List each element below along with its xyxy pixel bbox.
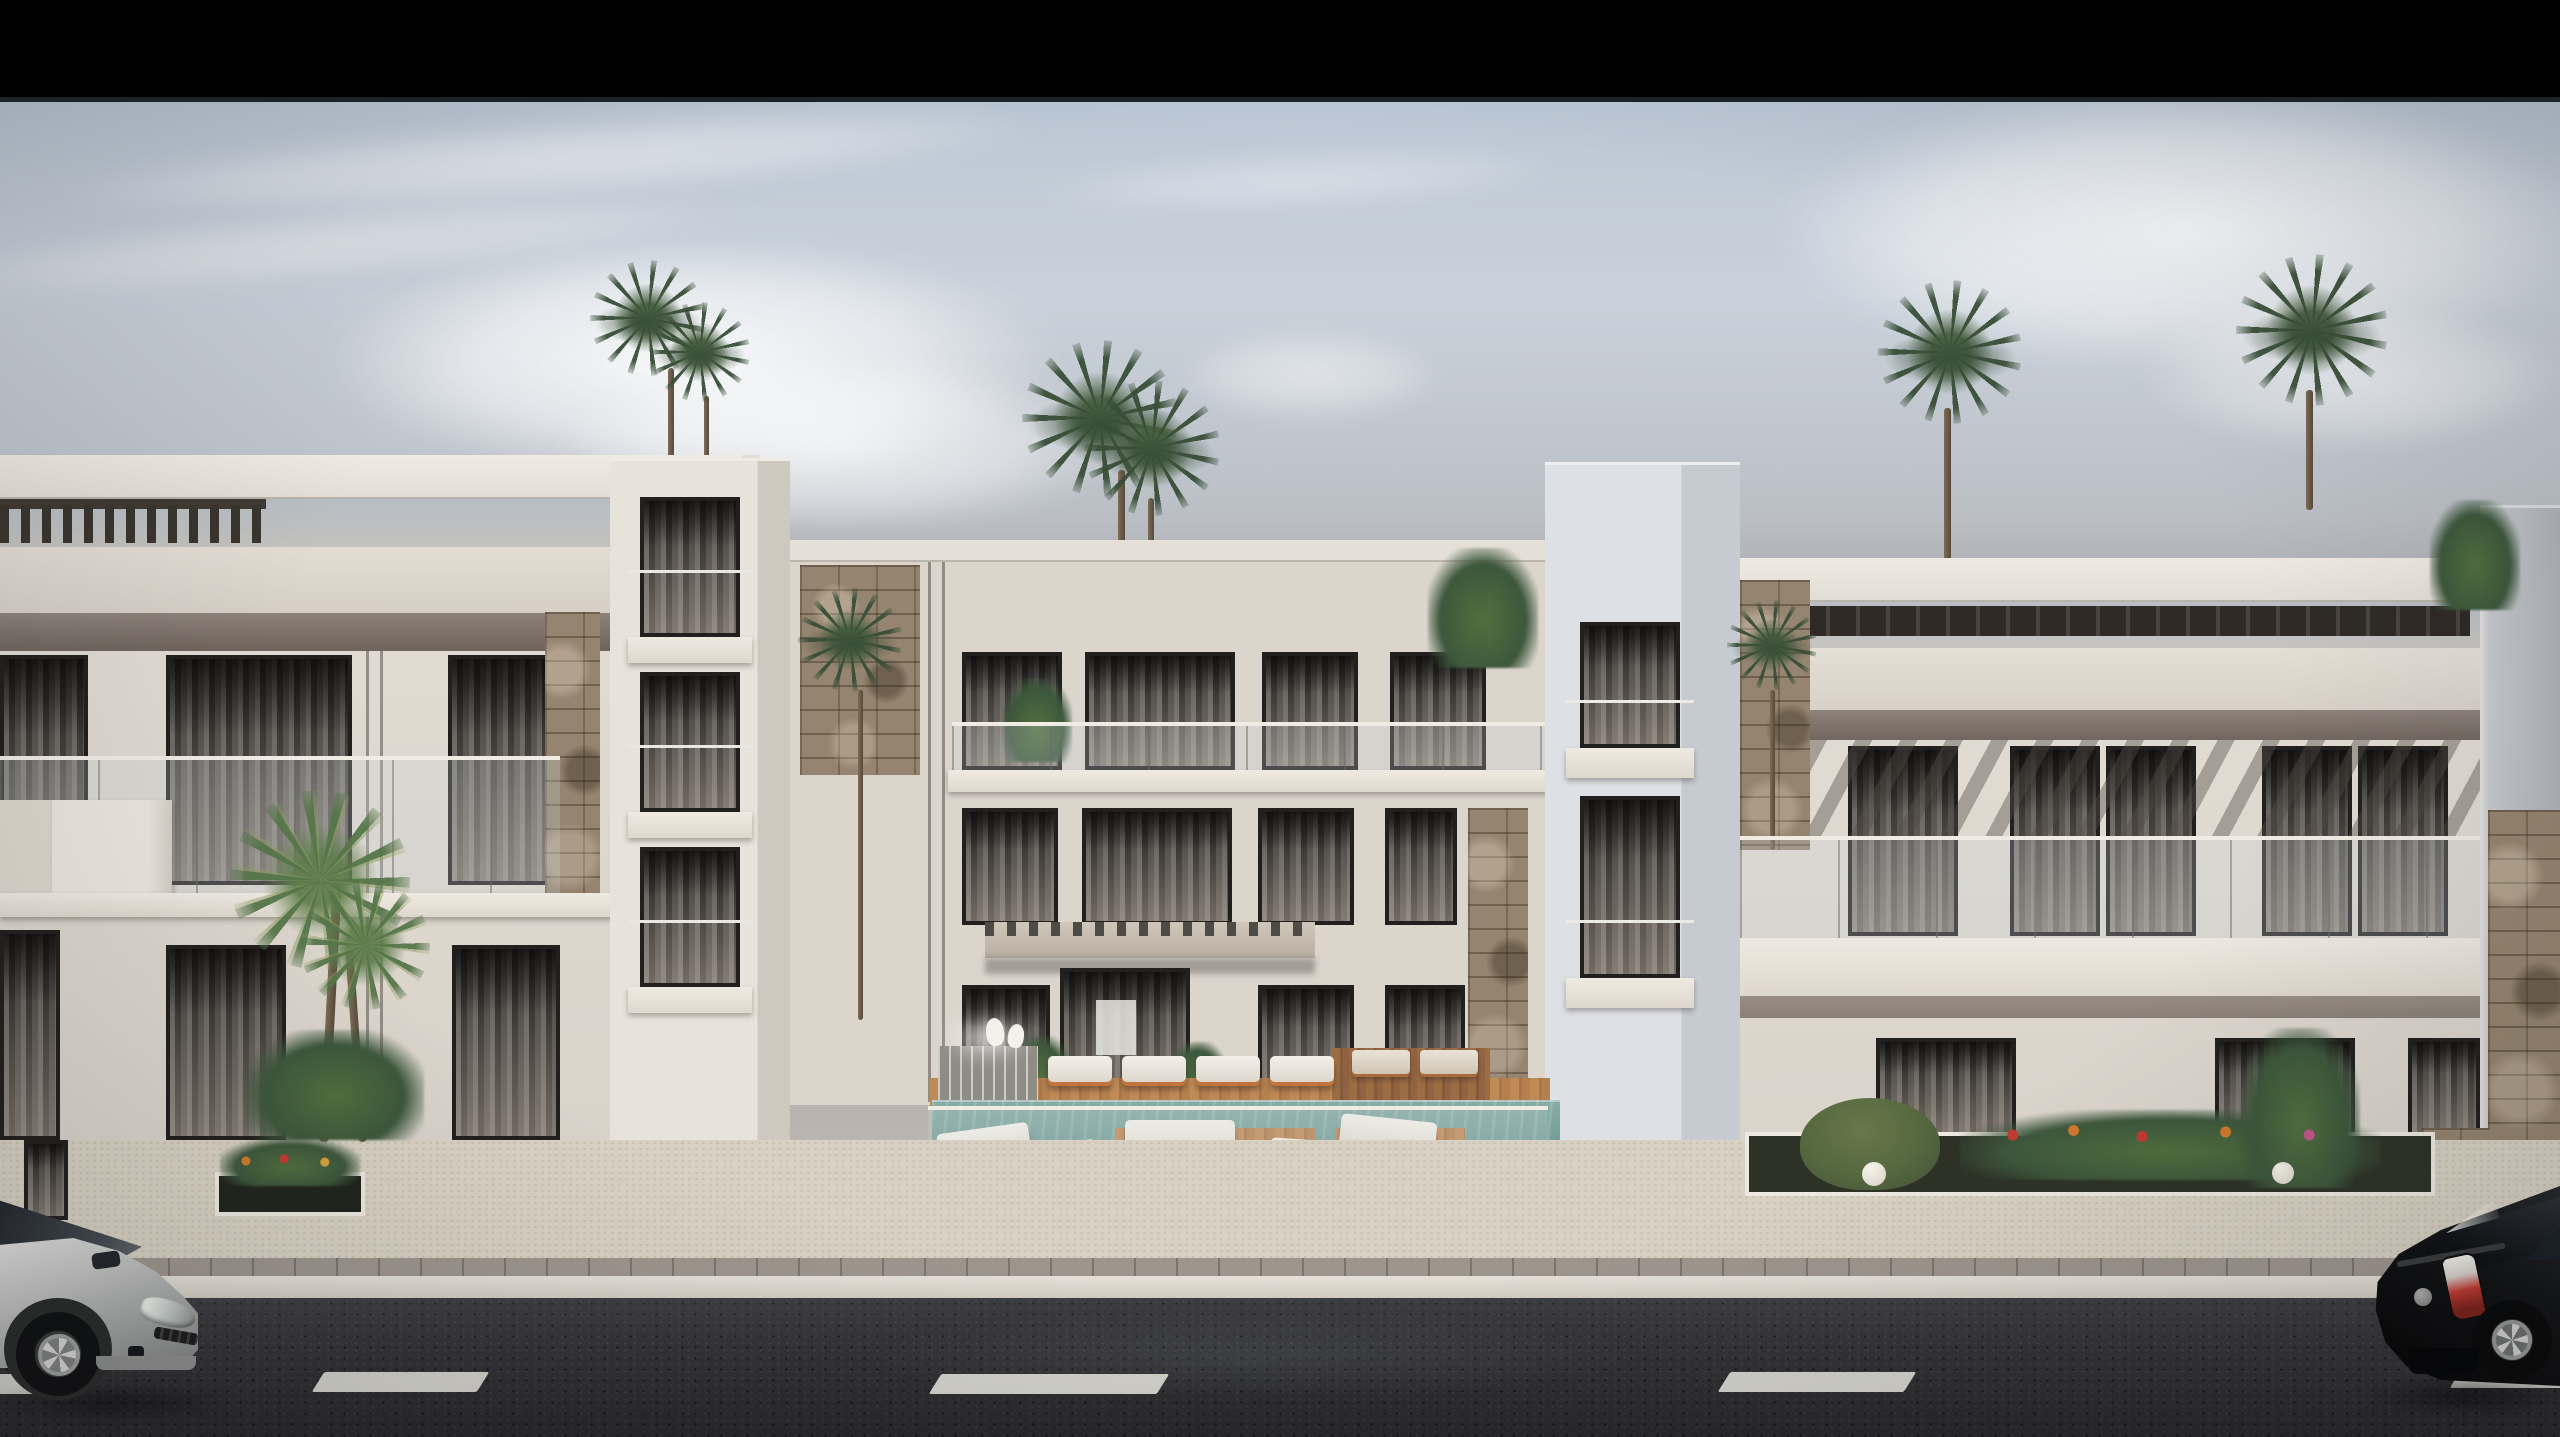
juliet-railing	[628, 920, 752, 923]
sun-lounger	[1048, 1056, 1112, 1082]
silver-car-wheel-hub	[38, 1334, 80, 1376]
tower-window	[640, 497, 740, 637]
bed-flower-dots	[1990, 1120, 2370, 1150]
window	[1082, 808, 1232, 925]
small-tree	[2240, 1028, 2360, 1188]
palm-frond-cluster	[2430, 500, 2520, 610]
courtyard-palm-trunk	[858, 690, 863, 1020]
sphere-lamp	[1862, 1162, 1886, 1186]
cumulus-cloud	[1180, 330, 1440, 420]
black-car-rocker-shadow	[2408, 1348, 2478, 1374]
window	[1385, 808, 1457, 925]
juliet-railing	[628, 745, 752, 748]
window	[962, 808, 1058, 925]
window	[452, 945, 560, 1140]
balcony-slab-band	[1740, 938, 2480, 996]
tower-window	[640, 672, 740, 812]
terrace-palm-trunk	[1770, 690, 1775, 850]
juliet-railing	[1566, 700, 1694, 703]
window	[1258, 808, 1354, 925]
balcony-soffit-shadow	[1740, 996, 2480, 1018]
tower-balcony-slab	[628, 987, 752, 1013]
right-wing-roof-beam	[1740, 558, 2480, 602]
right-wing-fascia	[1740, 648, 2480, 710]
curb-face	[0, 1276, 2560, 1298]
balcony-parapet	[52, 800, 172, 896]
tower-balcony-slab	[628, 637, 752, 663]
balcony-glass-railing	[1740, 836, 2480, 940]
courtyard-palm-crown	[798, 588, 902, 692]
window	[2408, 1038, 2480, 1138]
sun-lounger	[1420, 1050, 1478, 1074]
sidewalk-palm-crown	[300, 880, 430, 1010]
sun-lounger	[1270, 1056, 1334, 1082]
entrance-artwork	[1096, 1000, 1136, 1055]
tower-window	[1580, 796, 1680, 978]
tower-window	[640, 847, 740, 987]
tropical-understory	[244, 1030, 424, 1140]
stone-accent-pier	[2488, 810, 2560, 1140]
lane-dash	[929, 1374, 1169, 1394]
sphere-lamp	[2272, 1162, 2294, 1184]
pergola-stripe-shadows	[1810, 740, 2480, 836]
window	[0, 930, 60, 1140]
ground-glazing	[24, 1140, 68, 1220]
entrance-canopy-dentil-trim	[985, 922, 1315, 936]
juliet-railing	[1566, 920, 1694, 923]
curb-paver-strip	[0, 1258, 2560, 1276]
palm-trunk	[2306, 390, 2313, 510]
tower-balcony-slab	[1566, 748, 1694, 778]
facade-groove	[928, 562, 931, 1102]
black-car-badge	[2414, 1288, 2432, 1306]
right-wing-pergola-slats	[1800, 606, 2470, 636]
render-canvas: Letterboxed 3D rendering of a modern whi…	[0, 0, 2560, 1437]
floor-slab	[948, 770, 1550, 792]
letterbox-top-bar	[0, 0, 2560, 97]
letterbox-edge-line	[0, 97, 2560, 102]
lane-dash	[1718, 1372, 1916, 1392]
palm-crown	[1084, 380, 1220, 516]
facade-groove	[942, 562, 945, 1102]
palm-crown	[650, 302, 750, 402]
palm-crown	[2236, 254, 2388, 406]
terrace-palm-crown	[1727, 600, 1817, 690]
juliet-railing	[628, 570, 752, 573]
sun-lounger	[1352, 1050, 1410, 1074]
palm-trunk	[1944, 408, 1951, 563]
palm-trunk	[704, 396, 709, 462]
silver-car-skirt	[96, 1356, 196, 1370]
stone-accent-pier	[1468, 808, 1528, 1088]
palm-crown	[1878, 280, 2022, 424]
balcony-parapet	[0, 800, 52, 896]
left-wing-pergola-slats	[0, 505, 266, 543]
tower-window	[1580, 622, 1680, 748]
sun-lounger	[1122, 1056, 1186, 1082]
right-wing-soffit-shadow	[1740, 710, 2480, 740]
balcony-glass-railing	[952, 722, 1550, 772]
tower-balcony-slab	[1566, 978, 1694, 1008]
lane-dash	[312, 1372, 489, 1392]
tower-balcony-slab	[628, 812, 752, 838]
planter-flower-dots	[232, 1150, 348, 1172]
sun-lounger	[1196, 1056, 1260, 1082]
black-car-wheel-hub	[2492, 1320, 2532, 1360]
banana-leaf-cluster	[1428, 548, 1538, 668]
